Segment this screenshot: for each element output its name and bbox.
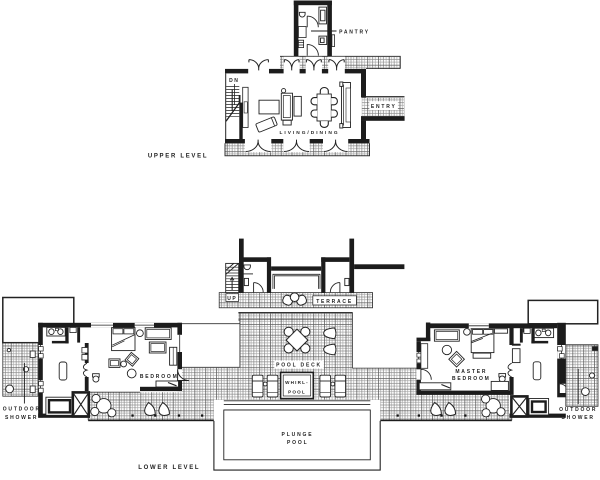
svg-text:POOL: POOL bbox=[288, 389, 306, 394]
svg-text:SHOWER: SHOWER bbox=[5, 415, 38, 421]
svg-text:ENTRY: ENTRY bbox=[371, 104, 397, 110]
svg-text:MASTER: MASTER bbox=[455, 369, 487, 375]
svg-text:SHOWER: SHOWER bbox=[562, 415, 595, 421]
svg-text:POOL: POOL bbox=[287, 440, 309, 446]
svg-text:UPPER LEVEL: UPPER LEVEL bbox=[148, 154, 208, 160]
svg-text:DN: DN bbox=[229, 78, 239, 84]
svg-text:PANTRY: PANTRY bbox=[339, 29, 370, 35]
svg-text:PLUNGE: PLUNGE bbox=[282, 432, 314, 438]
svg-text:POOL DECK: POOL DECK bbox=[276, 363, 322, 369]
svg-text:BEDROOM: BEDROOM bbox=[140, 374, 179, 380]
svg-text:LOWER LEVEL: LOWER LEVEL bbox=[138, 465, 200, 471]
svg-text:WHIRL-: WHIRL- bbox=[285, 380, 309, 385]
svg-text:BEDROOM: BEDROOM bbox=[452, 376, 491, 382]
svg-text:LIVING/DINING: LIVING/DINING bbox=[279, 130, 339, 136]
svg-text:UP: UP bbox=[227, 296, 237, 302]
svg-text:OUTDOOR: OUTDOOR bbox=[3, 407, 41, 413]
svg-text:TERRACE: TERRACE bbox=[316, 299, 353, 305]
svg-text:OUTDOOR: OUTDOOR bbox=[559, 407, 597, 413]
